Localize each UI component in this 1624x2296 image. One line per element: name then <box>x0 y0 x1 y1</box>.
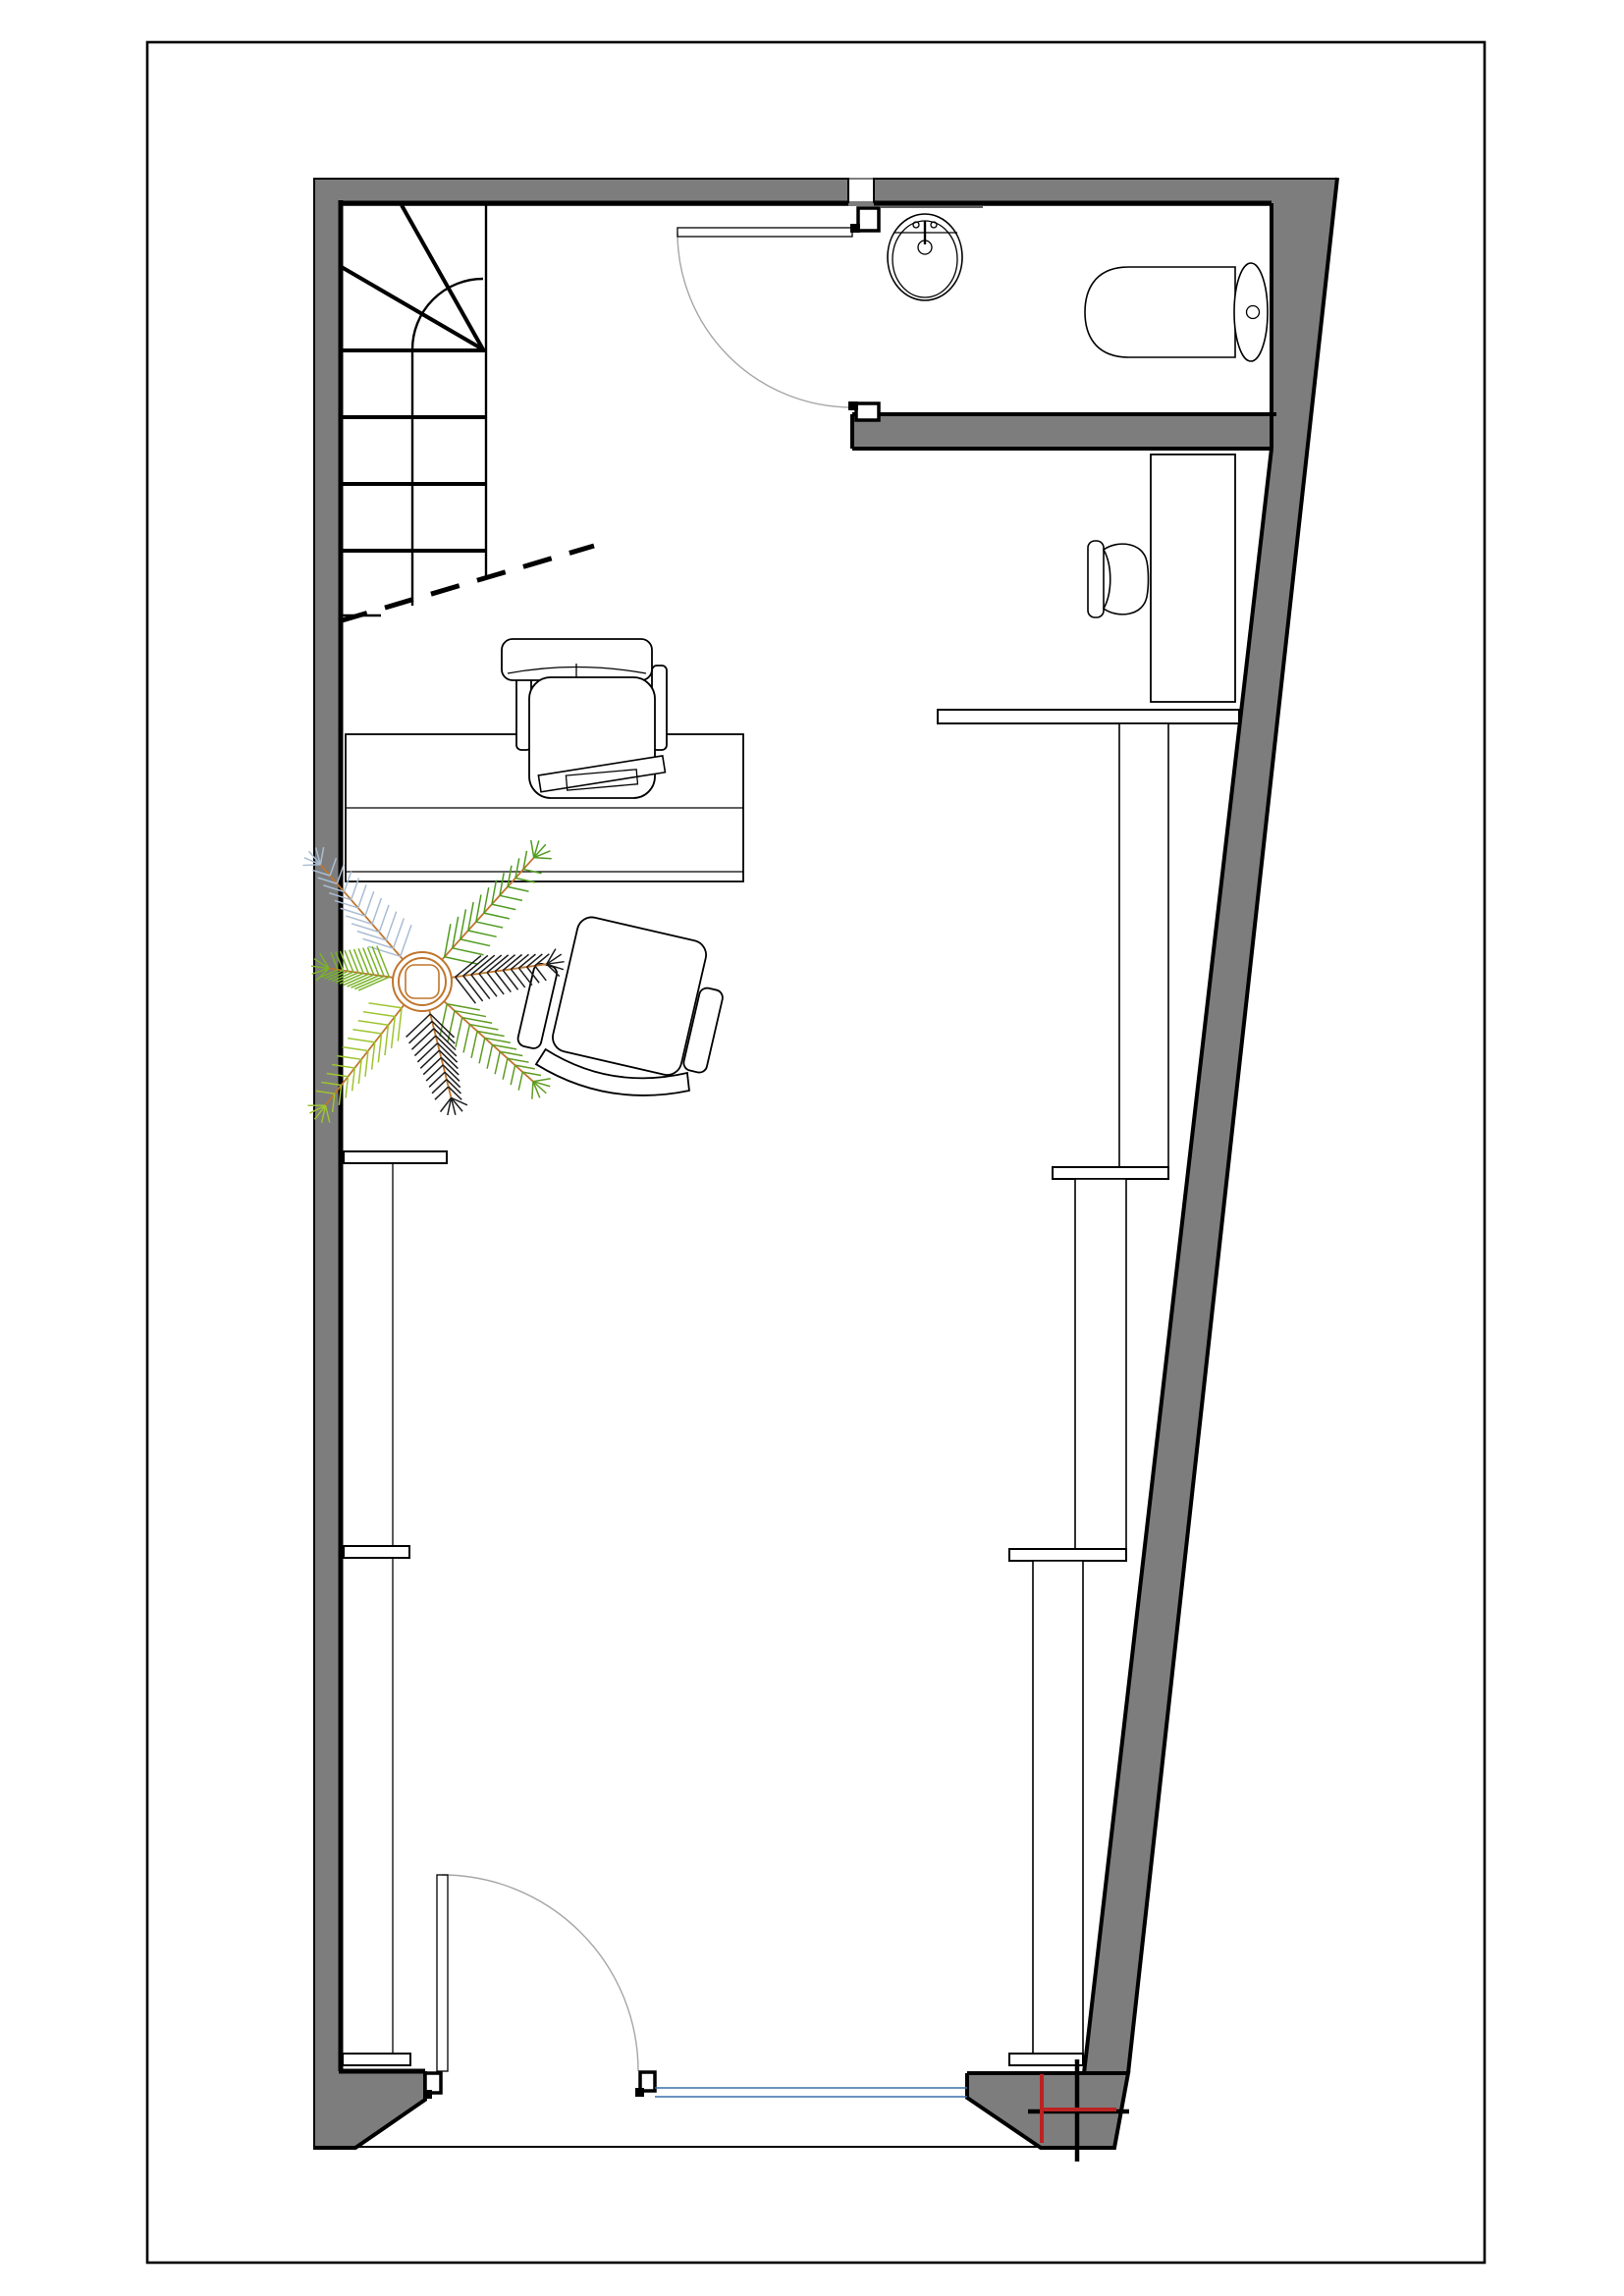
plant-frond-leaf <box>350 950 358 973</box>
plant-pot-circle <box>393 952 452 1011</box>
toilet-cistern <box>1234 263 1268 361</box>
plant-frond-leaf <box>420 1050 439 1068</box>
plant-frond-leaf <box>456 977 476 1003</box>
bathroom-door-swing-arc <box>677 233 852 407</box>
entry-door <box>423 1875 967 2099</box>
plant-pot-inner <box>406 965 439 998</box>
plant-frond-leaf <box>386 912 396 940</box>
bathroom-door-jamb-top-nub <box>850 224 860 233</box>
stair-winder-arc <box>412 279 483 349</box>
plant-frond-leaf <box>411 1029 433 1049</box>
right-shelf-segment-2 <box>1075 1179 1126 1549</box>
entry-door-leaf <box>437 1875 448 2071</box>
plant-frond-leaf <box>508 886 528 891</box>
plant-frond-leaf <box>363 948 374 975</box>
side-desk <box>1151 454 1235 702</box>
toilet-bowl <box>1085 267 1235 357</box>
entry-door-jamb-right-nub <box>635 2088 644 2097</box>
plant-frond-leaf <box>511 1065 514 1085</box>
plant-frond-leaf <box>487 1044 492 1068</box>
bathroom-door-leaf <box>677 228 852 237</box>
plant-frond-leaf <box>503 970 517 989</box>
floor-plan-drawing <box>0 0 1624 2296</box>
plant-frond-leaf <box>379 905 389 933</box>
plant-frond-leaf <box>503 1058 508 1079</box>
plant-frond-leaf <box>372 898 381 924</box>
plant-frond-leaf <box>394 918 405 948</box>
side-chair-seat <box>1104 544 1149 614</box>
plant-frond-leaf <box>492 904 515 909</box>
plant-frond-leaf <box>479 974 497 996</box>
plant-frond-leaf <box>453 948 484 955</box>
bathroom-door-jamb-bottom-nub <box>848 401 858 410</box>
stair-break-dashed-line <box>339 546 594 621</box>
right-shelf-cap-1 <box>1053 1167 1168 1179</box>
bathroom-fixtures <box>881 207 1268 361</box>
plant-frond-leaf <box>409 1021 433 1042</box>
plant-frond-leaf <box>495 1051 500 1074</box>
plant-frond-leaf <box>414 1036 435 1055</box>
plant-frond-leaf <box>479 1038 485 1063</box>
plant-frond-leaf <box>487 973 504 994</box>
plant-frond-leaf <box>511 969 524 988</box>
toilet <box>1085 263 1268 361</box>
side-chair-backrest <box>1088 541 1104 617</box>
plant-frond-leaf <box>358 948 368 974</box>
plant-frond-leaf <box>401 925 411 956</box>
bathroom-partition-wall <box>852 414 1276 449</box>
plant-frond-leaf <box>463 976 483 1001</box>
plant-frond-leaf <box>365 891 374 916</box>
right-shelf-cap-2 <box>1009 1549 1126 1561</box>
plant-frond-leaf <box>343 1047 368 1051</box>
plant-frond-leaf <box>363 1012 395 1017</box>
bathroom-door-jamb-bottom <box>856 403 879 420</box>
plant-frond-leaf <box>367 947 378 976</box>
plant-frond-leaf <box>344 974 369 985</box>
plant-frond-leaf <box>463 1025 469 1053</box>
winder-staircase <box>339 203 594 621</box>
left-shelf-cap-middle <box>344 1546 409 1558</box>
plant-frond-leaf <box>495 972 511 992</box>
plant-frond-leaf <box>358 1021 389 1026</box>
plant-frond-leaf <box>358 884 366 908</box>
plant-frond-leaf <box>468 931 497 936</box>
plant-frond-leaf <box>368 1003 402 1008</box>
right-counter <box>938 710 1239 723</box>
right-shelf-segment-1 <box>1119 723 1168 1167</box>
bathroom-door <box>677 208 879 420</box>
door-frame-wall-notch <box>848 180 874 201</box>
bathroom-door-jamb-top <box>858 208 879 231</box>
plant-frond-tip <box>533 1079 551 1082</box>
plant-frond-tip <box>532 1082 533 1099</box>
plant-frond-leaf <box>476 922 503 928</box>
plant-frond-leaf <box>352 1030 381 1034</box>
plant-frond-leaf <box>348 1039 375 1042</box>
plant-frond-leaf <box>423 1057 441 1074</box>
lounge-armchair <box>511 907 733 1113</box>
right-shelf-segment-3 <box>1033 1561 1083 2054</box>
plant-frond-leaf <box>500 895 522 900</box>
plant-frond-tip <box>302 865 320 866</box>
floor-plan-page <box>0 0 1624 2296</box>
plant-frond-leaf <box>471 975 490 999</box>
plant-frond-leaf <box>429 1072 445 1087</box>
wash-basin <box>888 214 962 300</box>
plant-frond-leaf <box>353 949 363 974</box>
entry-door-swing-arc <box>442 1875 638 2071</box>
plant-frond-leaf <box>460 939 490 946</box>
plant-frond-leaf <box>456 1018 462 1047</box>
left-shelf-cap-bottom <box>343 2054 410 2065</box>
left-shelf-run <box>343 1151 447 2065</box>
plant-frond-leaf <box>471 1031 477 1057</box>
plant-frond-leaf <box>484 913 510 919</box>
left-shelf-cap-top <box>344 1151 447 1163</box>
plant-frond-leaf <box>417 1043 437 1062</box>
side-chair <box>1088 541 1149 617</box>
plant-frond-leaf <box>426 1065 443 1081</box>
entry-door-jamb-left-nub <box>423 2090 432 2099</box>
plant-frond-leaf <box>518 1072 522 1091</box>
right-shelf-cap-3 <box>1009 2054 1083 2065</box>
plant-frond-leaf <box>345 950 353 972</box>
